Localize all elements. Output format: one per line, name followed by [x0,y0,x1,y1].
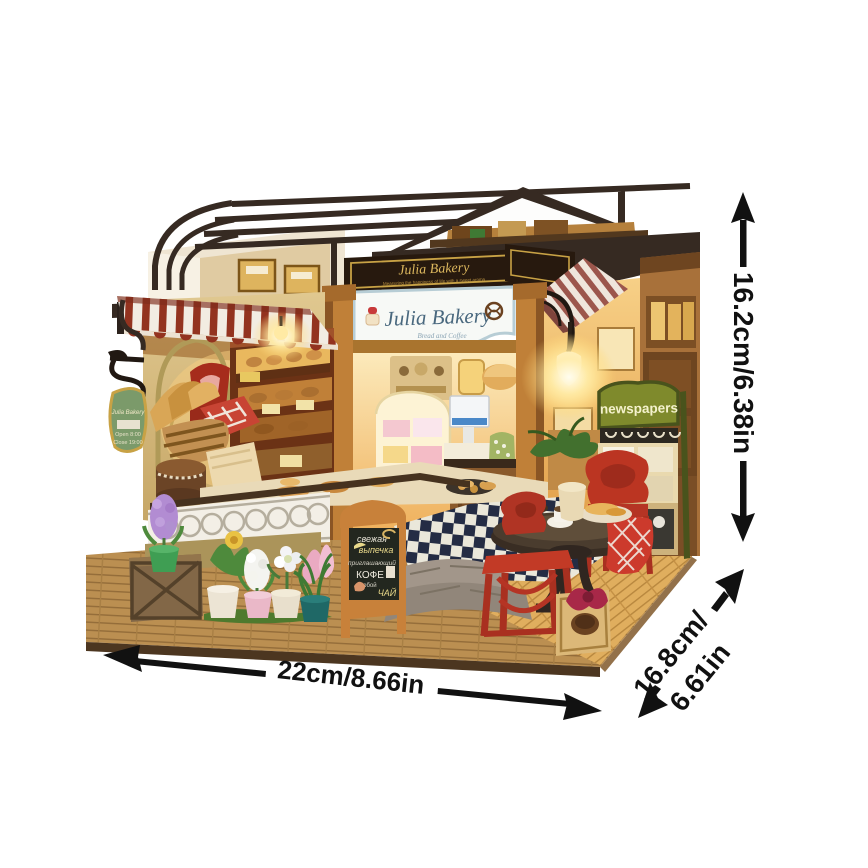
svg-text:Julia Bakery: Julia Bakery [111,410,146,416]
svg-text:приглашающий: приглашающий [348,559,396,567]
svg-text:КОФЕ: КОФЕ [356,570,384,581]
svg-text:newspapers: newspapers [600,400,678,416]
svg-text:ЧАЙ: ЧАЙ [378,587,397,598]
svg-text:Julia Bakery: Julia Bakery [398,260,471,278]
svg-text:выпечка: выпечка [359,545,394,555]
svg-text:16.2cm/6.38in: 16.2cm/6.38in [728,272,759,454]
svg-text:Julia Bakery: Julia Bakery [384,303,492,331]
svg-text:Close 19:00: Close 19:00 [113,440,142,446]
svg-text:Bread and Coffee: Bread and Coffee [417,332,466,340]
svg-text:Open 8:00: Open 8:00 [115,432,141,438]
